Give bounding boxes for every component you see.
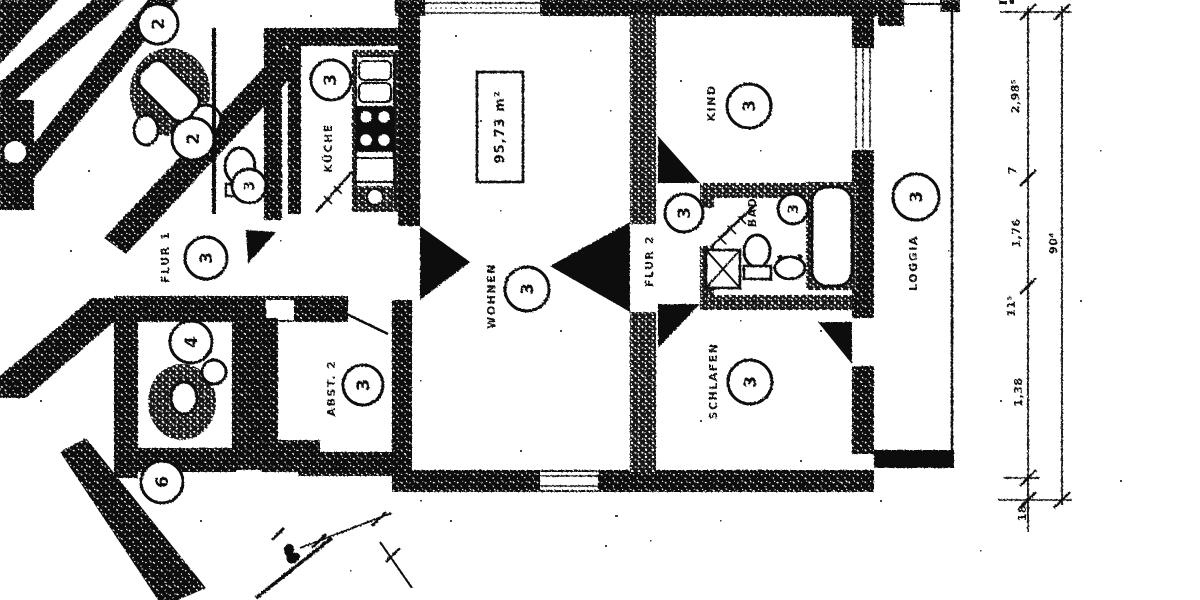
dim-138: 1,38 bbox=[1012, 377, 1025, 406]
room-label-wohnen: WOHNEN bbox=[485, 263, 498, 329]
unit-circle-kind: 3 bbox=[740, 100, 760, 112]
room-label-loggia: LOGGIA bbox=[907, 235, 920, 291]
dim-18: 18 bbox=[1016, 505, 1029, 521]
neighbor-sink-2 bbox=[202, 360, 226, 384]
dim-2985: 2,98⁵ bbox=[1009, 79, 1022, 113]
window-kind-loggia bbox=[852, 48, 874, 148]
washbasin bbox=[775, 257, 805, 279]
unit-circle-flur2: 3 bbox=[675, 207, 695, 219]
room-label-flur2: FLUR 2 bbox=[643, 235, 656, 287]
dim-176: 1,76 bbox=[1010, 218, 1023, 247]
toilet bbox=[744, 235, 770, 267]
room-label-kueche: KÜCHE bbox=[321, 123, 335, 173]
unit-circle-loggia: 3 bbox=[907, 191, 927, 203]
window-bottom-wohnen bbox=[540, 472, 598, 490]
unit-circle-flur1: 3 bbox=[197, 252, 217, 264]
neighbor-circle-4: 6 bbox=[153, 476, 173, 488]
unit-circle-abst2: 3 bbox=[354, 379, 374, 391]
dim-overall-904: 90⁴ bbox=[1047, 232, 1060, 254]
kitchen-sink bbox=[359, 61, 391, 80]
area-box: 95,73 m² bbox=[477, 72, 523, 182]
unit-circle-bad: 3 bbox=[786, 204, 802, 214]
dim-7: 7 bbox=[1006, 166, 1019, 174]
neighbor-toilet bbox=[134, 115, 158, 145]
neighbor-circle-0: 2 bbox=[149, 18, 169, 30]
room-label-flur1: FLUR 1 bbox=[159, 231, 172, 283]
window-top-wohnen bbox=[425, 0, 540, 16]
room-label-abst2: ABST. 2 bbox=[325, 360, 338, 417]
dim-115: 11⁵ bbox=[1005, 295, 1018, 317]
room-label-kind: KIND bbox=[705, 85, 718, 122]
neighbor-circle-3: 4 bbox=[182, 336, 202, 348]
room-kind: 3 KIND bbox=[705, 84, 771, 128]
room-label-schlafen: SCHLAFEN bbox=[707, 343, 720, 420]
floor-plan-scan: 95,73 m² 3 KÜCHE 3 WOHNEN 3 KIND 3 bbox=[0, 0, 1200, 600]
stove-burner bbox=[360, 111, 373, 124]
unit-circle-wohnen: 3 bbox=[518, 283, 538, 295]
room-label-bad: BAD bbox=[746, 197, 759, 228]
unit-circle-schlafen: 3 bbox=[741, 376, 761, 388]
neighbor-circle-2: 3 bbox=[242, 181, 258, 191]
kueche-fixtures bbox=[352, 50, 398, 212]
unit-circle-kueche: 3 bbox=[321, 74, 341, 86]
neighbor-toilet-2 bbox=[171, 382, 197, 414]
bathtub bbox=[812, 187, 852, 286]
area-label: 95,73 m² bbox=[493, 91, 508, 164]
floor-plan-canvas: 95,73 m² 3 KÜCHE 3 WOHNEN 3 KIND 3 bbox=[0, 0, 1200, 600]
neighbor-circle-1: 2 bbox=[184, 133, 204, 145]
